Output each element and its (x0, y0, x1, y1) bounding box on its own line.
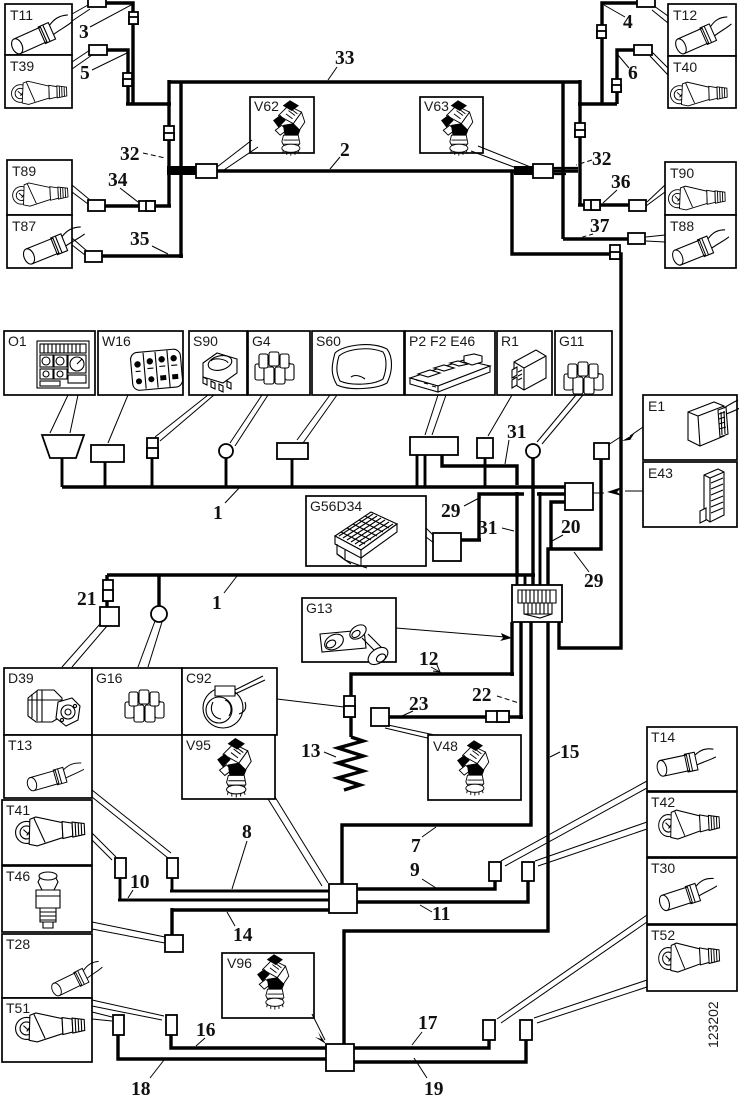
svg-text:T51: T51 (6, 1000, 30, 1016)
svg-text:T52: T52 (651, 927, 675, 943)
svg-text:9: 9 (410, 860, 420, 881)
svg-text:15: 15 (560, 742, 580, 763)
svg-text:31: 31 (507, 422, 527, 443)
svg-text:T41: T41 (6, 802, 30, 818)
svg-text:T89: T89 (12, 163, 36, 179)
svg-text:T14: T14 (651, 729, 675, 745)
svg-text:13: 13 (301, 741, 321, 762)
svg-text:S90: S90 (193, 333, 218, 349)
svg-text:T30: T30 (651, 860, 675, 876)
svg-text:T87: T87 (12, 218, 36, 234)
svg-text:8: 8 (242, 822, 252, 843)
svg-text:1: 1 (212, 593, 222, 614)
svg-text:T13: T13 (8, 737, 32, 753)
svg-text:E43: E43 (648, 465, 673, 481)
svg-text:T28: T28 (6, 936, 30, 952)
svg-text:12: 12 (419, 649, 439, 670)
svg-text:V96: V96 (227, 955, 252, 971)
svg-text:V63: V63 (424, 98, 449, 114)
svg-text:33: 33 (335, 48, 355, 69)
svg-text:123202: 123202 (705, 1001, 721, 1048)
svg-text:19: 19 (424, 1079, 444, 1100)
svg-text:R1: R1 (501, 333, 519, 349)
svg-text:T90: T90 (670, 165, 694, 181)
svg-text:W16: W16 (102, 333, 131, 349)
svg-text:32: 32 (120, 144, 140, 165)
svg-text:T40: T40 (673, 59, 697, 75)
svg-text:36: 36 (611, 172, 631, 193)
svg-text:T12: T12 (673, 7, 697, 23)
svg-text:6: 6 (628, 63, 638, 84)
svg-text:5: 5 (80, 63, 90, 84)
svg-text:37: 37 (590, 216, 610, 237)
svg-text:G4: G4 (252, 333, 271, 349)
svg-text:T46: T46 (6, 868, 30, 884)
svg-text:V95: V95 (186, 737, 211, 753)
svg-text:29: 29 (584, 571, 604, 592)
svg-text:17: 17 (418, 1013, 438, 1034)
svg-text:16: 16 (196, 1020, 216, 1041)
svg-text:11: 11 (432, 904, 450, 925)
svg-text:E1: E1 (648, 398, 665, 414)
svg-text:T11: T11 (10, 7, 33, 23)
svg-text:34: 34 (108, 170, 128, 191)
svg-text:V48: V48 (433, 738, 458, 754)
svg-text:C92: C92 (186, 670, 212, 686)
svg-text:1: 1 (213, 503, 223, 524)
svg-text:21: 21 (77, 589, 97, 610)
svg-text:29: 29 (441, 501, 461, 522)
svg-text:7: 7 (411, 836, 421, 857)
svg-text:T39: T39 (10, 58, 34, 74)
svg-text:V62: V62 (254, 98, 279, 114)
svg-text:35: 35 (130, 229, 150, 250)
svg-text:20: 20 (561, 517, 581, 538)
svg-text:14: 14 (233, 925, 253, 946)
svg-text:10: 10 (130, 872, 150, 893)
svg-text:3: 3 (79, 22, 89, 43)
svg-text:T42: T42 (651, 794, 675, 810)
svg-text:18: 18 (131, 1079, 151, 1100)
svg-text:G16: G16 (96, 670, 123, 686)
svg-text:G13: G13 (306, 600, 333, 616)
svg-text:22: 22 (472, 685, 492, 706)
svg-text:2: 2 (340, 140, 350, 161)
svg-text:31: 31 (478, 518, 498, 539)
svg-text:32: 32 (592, 149, 612, 170)
svg-text:G56D34: G56D34 (310, 498, 362, 514)
svg-text:T88: T88 (670, 218, 694, 234)
svg-text:4: 4 (623, 12, 633, 33)
svg-text:S60: S60 (316, 333, 341, 349)
svg-text:D39: D39 (8, 670, 34, 686)
svg-text:G11: G11 (559, 333, 585, 349)
svg-text:O1: O1 (8, 333, 27, 349)
svg-text:P2 F2 E46: P2 F2 E46 (409, 333, 475, 349)
